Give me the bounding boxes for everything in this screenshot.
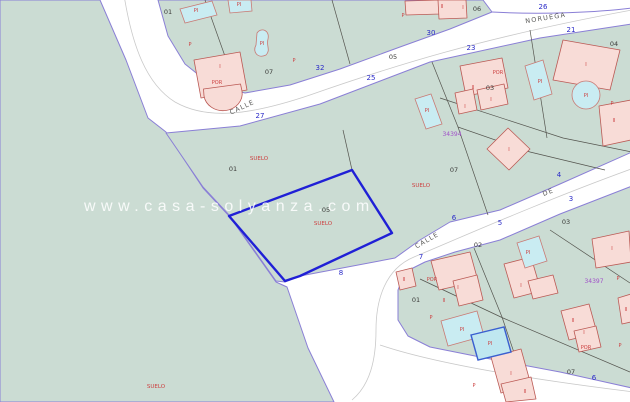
street-number-7: 7 (419, 253, 423, 261)
plot-label-p: P (188, 42, 191, 48)
plot-label-p: P (472, 383, 475, 389)
floor-label-i: I (508, 147, 509, 153)
street-number-30: 30 (427, 29, 436, 37)
cadastral-map-viewport[interactable]: CALLENORUEGACALLEDE273225302326214365786… (0, 0, 630, 402)
floor-label-i: I (583, 330, 584, 336)
porch-label-por: POR (427, 277, 438, 283)
pool-label-pi: PI (584, 93, 589, 99)
parcel-number-06-top: 06 (473, 5, 481, 13)
pool-label-pi: PI (260, 41, 265, 47)
floor-label-i: I (457, 285, 458, 291)
street-number-8: 8 (339, 269, 343, 277)
parcel-blocks (0, 0, 630, 402)
porch-label-por: POR (212, 80, 223, 86)
floor-label-ii: II (472, 85, 475, 91)
parcel-number-03-bottom: 03 (562, 218, 570, 226)
floor-label-ii: II (441, 4, 444, 10)
pool-label-pi: PI (194, 8, 199, 14)
floor-label-i: I (219, 64, 220, 70)
cadastral-map[interactable]: CALLENORUEGACALLEDE273225302326214365786… (0, 0, 630, 402)
floor-label-ii: II (403, 277, 406, 283)
street-number-5: 5 (498, 219, 502, 227)
parcel-number-01-bottom: 01 (412, 296, 420, 304)
pool-label-pi: PI (538, 79, 543, 85)
floor-label-i: I (462, 5, 463, 11)
pool-label-pi: PI (460, 327, 465, 333)
floor-label-ii: II (625, 307, 628, 313)
floor-label-i: I (520, 283, 521, 289)
plot-label-p: P (292, 58, 295, 64)
pool-label-pi: PI (488, 341, 493, 347)
street-number-21: 21 (567, 26, 576, 34)
parcel-number-01-mid: 01 (229, 165, 237, 173)
street-number-6b: 6 (592, 374, 597, 382)
land-label-suelo-selected: SUELO (314, 221, 333, 227)
plot-label-p: P (610, 101, 613, 107)
parcel-number-05-top: 05 (389, 53, 397, 61)
parcel-number-04: 04 (610, 40, 618, 48)
plot-label-p: P (616, 276, 619, 282)
pool-label-pi: PI (237, 2, 242, 8)
pool-label-pi: PI (425, 108, 430, 114)
street-number-6: 6 (452, 214, 457, 222)
plot-label-p: P (401, 13, 404, 19)
street-number-27: 27 (256, 112, 265, 120)
floor-label-i: I (611, 246, 612, 252)
building (455, 89, 477, 114)
floor-label-ii: II (443, 298, 446, 304)
floor-label-i: I (585, 62, 586, 68)
floor-label-i: I (510, 371, 511, 377)
building (396, 268, 416, 290)
plot-label-p: P (429, 315, 432, 321)
floor-label-i: I (490, 97, 491, 103)
street-number-23: 23 (467, 44, 476, 52)
land-label-suelo-1: SUELO (250, 156, 269, 162)
floor-label-ii: II (524, 389, 527, 395)
parcel-number-07-mid: 07 (450, 166, 458, 174)
parcel-number-07-top: 07 (265, 68, 273, 76)
street-number-26: 26 (539, 3, 548, 11)
building (405, 0, 440, 15)
parcel-number-07-bottom: 07 (567, 368, 575, 376)
street-number-25: 25 (367, 74, 376, 82)
sheet-ref-34394: 34394 (442, 131, 461, 138)
street-number-3: 3 (569, 195, 573, 203)
pool-label-pi: PI (526, 250, 531, 256)
street-number-32: 32 (316, 64, 325, 72)
plot-label-p: P (618, 343, 621, 349)
sheet-ref-34397: 34397 (584, 278, 603, 285)
street-number-4: 4 (557, 171, 562, 179)
floor-label-ii: II (572, 318, 575, 324)
land-label-suelo-3: SUELO (147, 384, 166, 390)
parcel-number-05-selected: 05 (322, 206, 330, 214)
parcel-number-03-mid: 03 (486, 84, 494, 92)
porch-label-por: POR (581, 345, 592, 351)
parcel-number-01-top: 01 (164, 8, 172, 16)
parcel-number-02-bottom: 02 (474, 241, 482, 249)
land-label-suelo-2: SUELO (412, 183, 431, 189)
floor-label-ii: II (613, 118, 616, 124)
porch-label-por: POR (493, 70, 504, 76)
floor-label-i: I (464, 104, 465, 110)
